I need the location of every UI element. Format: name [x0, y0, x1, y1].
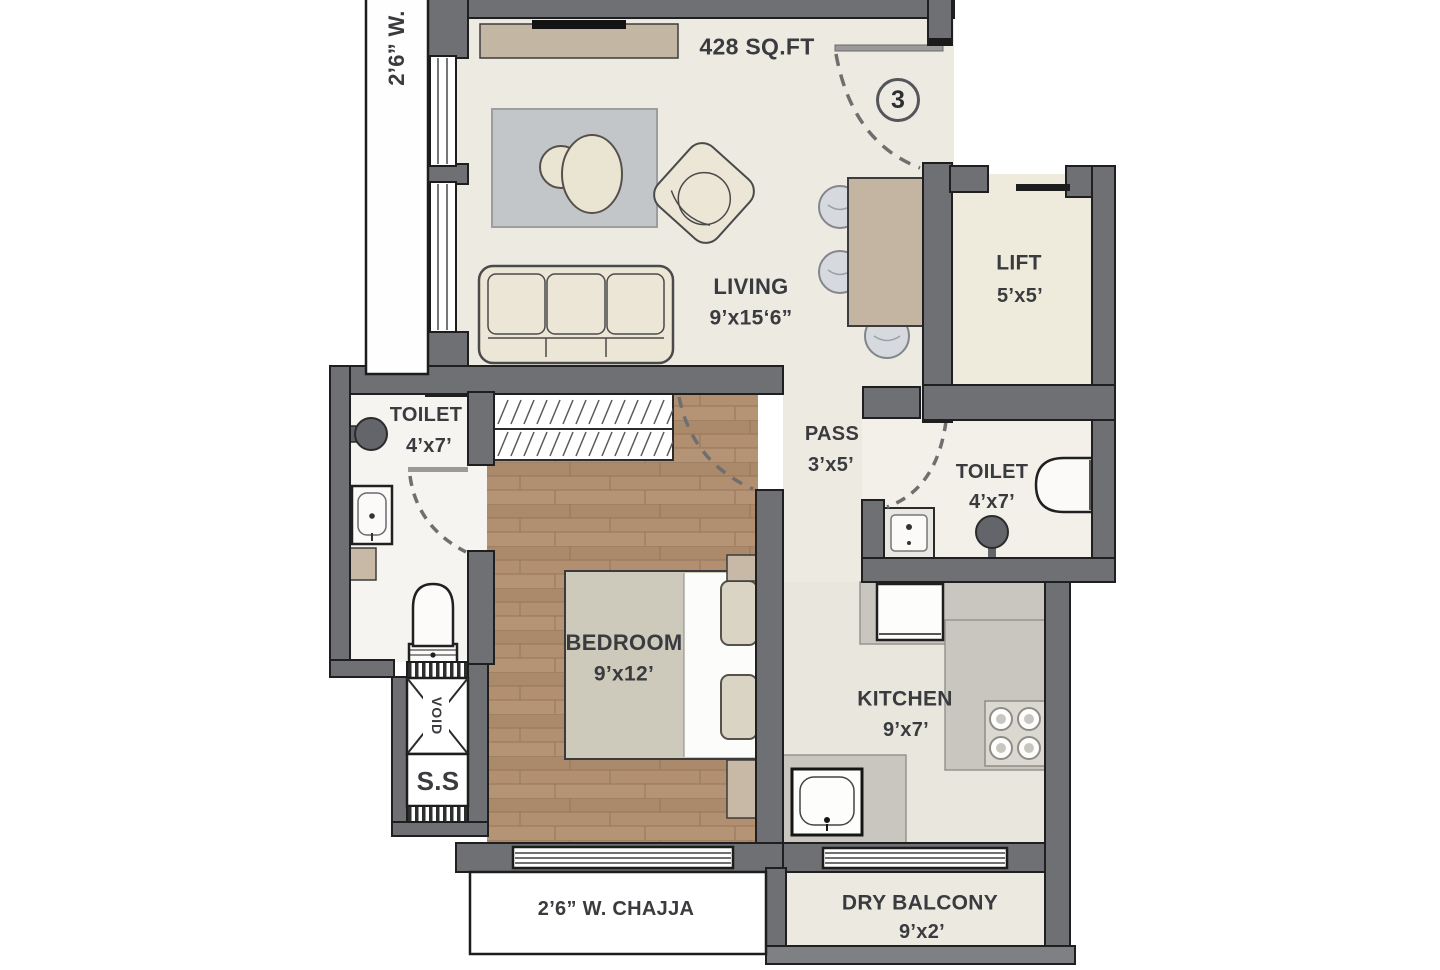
wardrobe — [493, 394, 677, 460]
kitchen-label: KITCHEN — [857, 689, 952, 710]
wall-toilet-left-b — [468, 551, 494, 664]
dry-balcony-label: DRY BALCONY — [842, 893, 998, 914]
bedroom-label: BEDROOM — [566, 632, 683, 654]
wash-basin-icon — [352, 486, 392, 544]
wall-kitchen-right — [1045, 582, 1070, 962]
wall-lift-left — [923, 163, 952, 422]
bedroom-dims: 9’x12’ — [594, 664, 654, 685]
wall-shaft-left — [392, 677, 408, 827]
pillow-icon — [721, 581, 757, 645]
living-dims: 9’x15‘6” — [710, 308, 793, 329]
tv-icon — [532, 20, 626, 29]
toilet-right-label: TOILET — [956, 462, 1029, 482]
stove-icon — [985, 701, 1045, 766]
lift-dims: 5’x5’ — [997, 286, 1043, 306]
wall-shaft-bottom — [392, 822, 488, 836]
toilet-right-dims: 4’x7’ — [969, 492, 1015, 512]
floor-plan-drawing — [0, 0, 1440, 970]
wall-toilet-left-a — [468, 392, 494, 465]
service-shaft-label: S.S — [417, 768, 460, 794]
sofa — [479, 266, 673, 363]
wall-toilet-right-bottom — [862, 558, 1115, 582]
tv-unit — [480, 20, 678, 58]
window-kitchen — [823, 848, 1007, 868]
chajja-label: 2’6” W. CHAJJA — [538, 899, 694, 919]
floor-plan: 428 SQ.FT 3 LIVING 9’x15‘6” LIFT 5’x5’ T… — [0, 0, 1440, 970]
area-label: 428 SQ.FT — [699, 36, 814, 59]
pass-dims: 3’x5’ — [808, 455, 854, 475]
wall-pass-stub — [863, 387, 920, 418]
void-label: VOID — [430, 697, 444, 735]
wall-top — [428, 0, 954, 18]
bath-shelf — [350, 548, 376, 580]
living-label: LIVING — [713, 276, 788, 298]
ledge-label: 2’6” W. — [386, 10, 408, 85]
pillow-icon — [721, 675, 757, 739]
window-bedroom — [513, 847, 733, 868]
wall-balcony-bottom — [766, 946, 1075, 964]
lift-label: LIFT — [996, 253, 1042, 274]
coffee-table-large-icon — [562, 135, 622, 213]
vent-grill-icon — [407, 806, 468, 822]
unit-number-badge: 3 — [876, 78, 920, 122]
wall-left-top — [426, 0, 468, 58]
wall-step — [330, 660, 394, 677]
wash-basin-icon — [884, 508, 934, 558]
window-living-left — [430, 56, 456, 332]
service-shaft — [407, 662, 468, 822]
fridge-icon — [877, 584, 943, 640]
dry-balcony-dims: 9’x2’ — [899, 922, 945, 942]
kitchen-dims: 9’x7’ — [883, 720, 929, 740]
lift-door-icon — [1016, 184, 1070, 191]
wall-left-outer — [330, 366, 350, 677]
dining-table — [848, 178, 926, 326]
entrance-door-leaf — [835, 45, 943, 51]
wall-lift-bottom — [923, 385, 1115, 420]
wall-shaft-right — [468, 662, 488, 834]
toilet-left-door-leaf — [408, 467, 468, 472]
vent-grill-icon — [407, 662, 468, 678]
wall-right-outer — [1092, 166, 1115, 582]
lift-floor — [950, 174, 1092, 385]
wall-lift-top-left — [950, 166, 988, 192]
kitchen-sink-icon — [792, 769, 862, 835]
pass-label: PASS — [805, 424, 859, 444]
toilet-left-dims: 4’x7’ — [406, 436, 452, 456]
toilet-left-label: TOILET — [390, 405, 463, 425]
wall-bedroom-right — [756, 490, 783, 847]
wall-cap — [929, 38, 951, 46]
water-closet-icon — [409, 584, 457, 663]
